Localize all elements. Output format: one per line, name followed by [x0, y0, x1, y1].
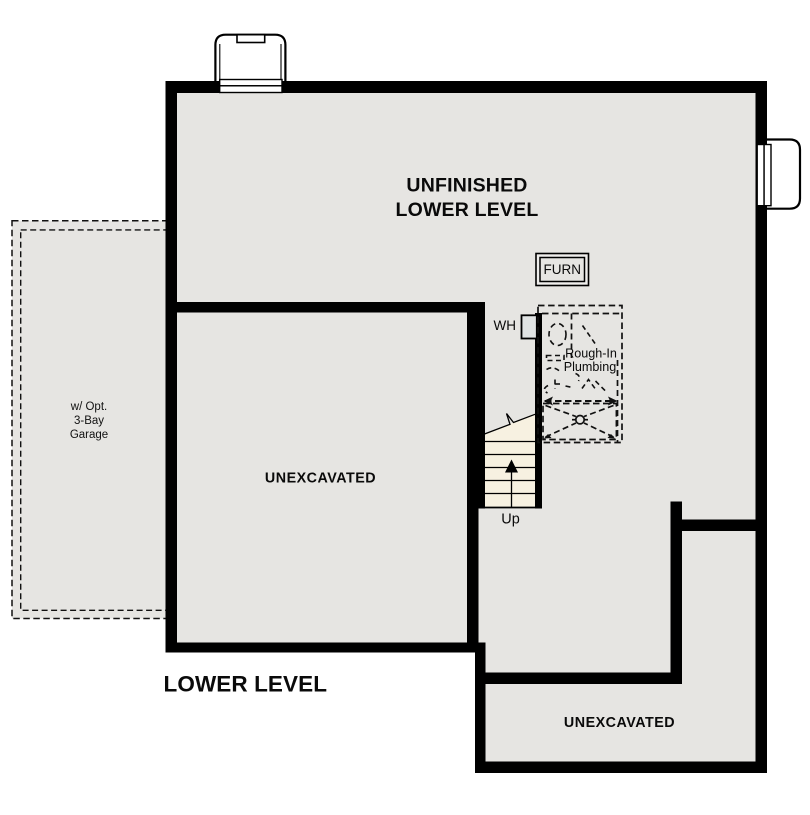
svg-text:Garage: Garage	[70, 429, 108, 441]
svg-text:WH: WH	[494, 318, 517, 333]
svg-text:UNFINISHED: UNFINISHED	[406, 175, 527, 197]
svg-text:3-Bay: 3-Bay	[74, 415, 104, 427]
svg-text:LOWER LEVEL: LOWER LEVEL	[164, 672, 328, 697]
svg-text:Plumbing: Plumbing	[564, 360, 617, 374]
svg-text:w/ Opt.: w/ Opt.	[70, 401, 107, 413]
svg-text:UNEXCAVATED: UNEXCAVATED	[564, 715, 675, 731]
svg-text:Up: Up	[501, 512, 520, 528]
svg-text:Rough-In: Rough-In	[565, 347, 617, 361]
svg-text:LOWER LEVEL: LOWER LEVEL	[395, 199, 538, 221]
svg-text:FURN: FURN	[544, 262, 582, 277]
svg-text:UNEXCAVATED: UNEXCAVATED	[265, 471, 376, 487]
